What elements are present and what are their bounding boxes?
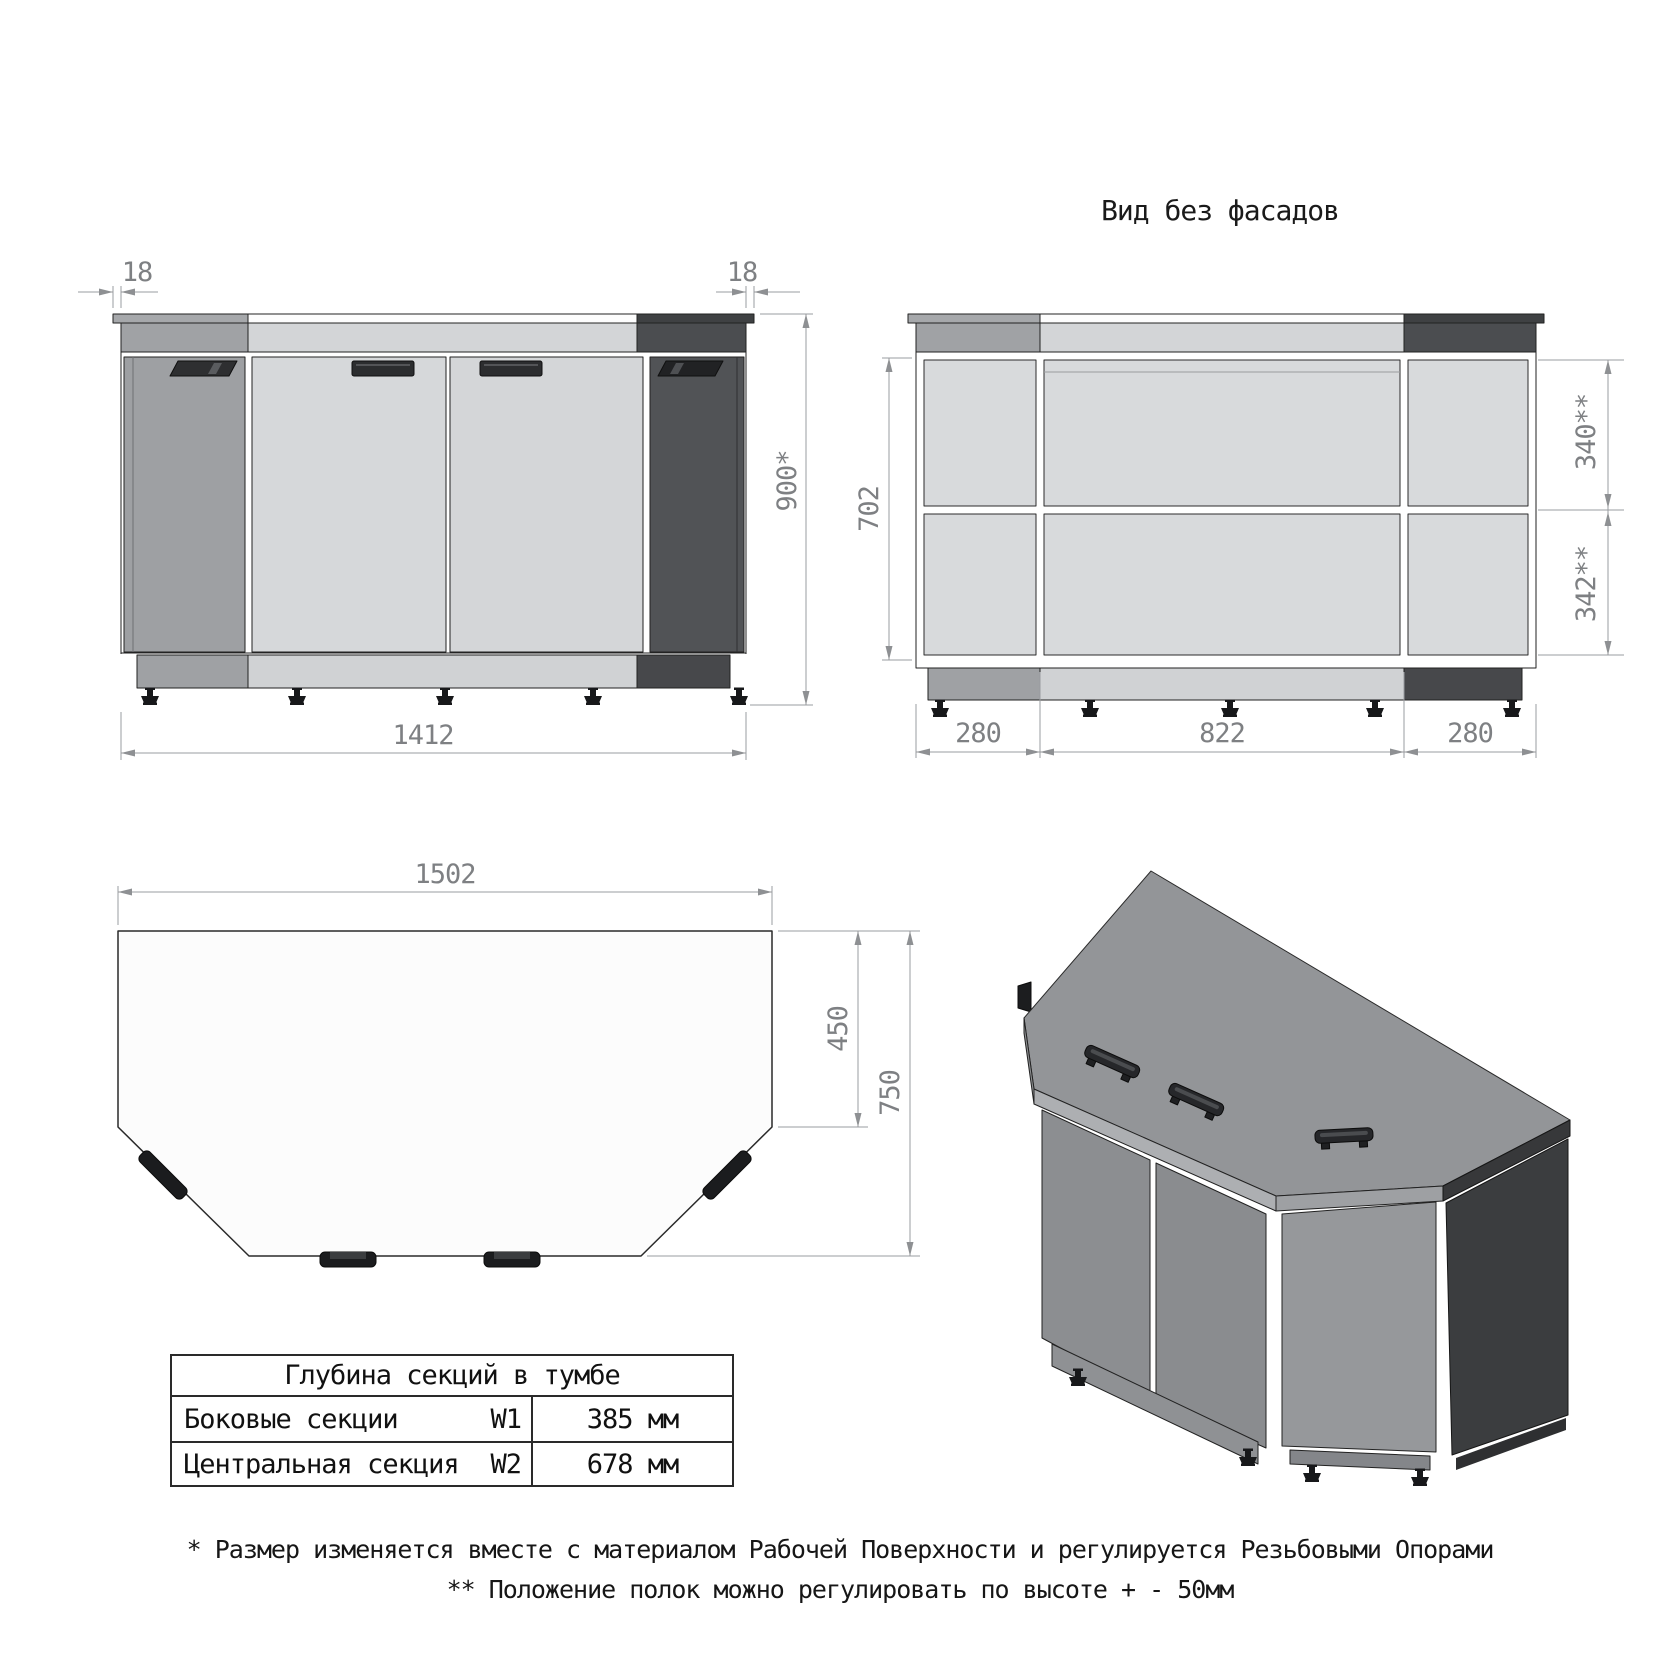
dim-plan-width xyxy=(118,886,772,925)
table-cell-value: 678 мм xyxy=(533,1443,732,1485)
arrow xyxy=(886,358,893,372)
door-center-1 xyxy=(252,357,446,652)
top-band-left xyxy=(916,323,1040,352)
dim-inner-height xyxy=(882,358,912,660)
arrow xyxy=(1605,360,1612,374)
door-right-side xyxy=(650,357,744,652)
handle-center-1-icon xyxy=(352,361,414,376)
plinth-left xyxy=(928,668,1040,700)
dim-text-plan-width: 1502 xyxy=(414,859,475,890)
dim-text-overhang-left: 18 xyxy=(122,257,153,288)
front-view: 18 18 900* 1412 xyxy=(78,257,813,760)
top-band-center xyxy=(1040,323,1404,352)
dim-text-left-section: 280 xyxy=(955,718,1001,749)
feet-front-view xyxy=(141,688,748,706)
arrow xyxy=(1040,749,1054,756)
arrow xyxy=(1605,494,1612,508)
table-row: Центральная секция W2 678 мм xyxy=(172,1443,732,1485)
section-left-top xyxy=(924,360,1036,506)
arrow xyxy=(1605,512,1612,526)
dim-text-lower-shelf: 342** xyxy=(1571,546,1602,622)
no-facade-view-title: Вид без фасадов xyxy=(1040,194,1400,227)
arrow xyxy=(855,1113,862,1127)
no-facade-view: 702 340** 342** 280 822 280 xyxy=(854,314,1624,758)
arrow xyxy=(1404,749,1418,756)
worktop-edge-center xyxy=(1040,314,1404,323)
row-label: Центральная секция xyxy=(184,1449,459,1480)
section-right-top xyxy=(1408,360,1528,506)
handle-right-icon xyxy=(658,361,723,376)
row-label: Боковые секции xyxy=(184,1404,398,1435)
plinth-center xyxy=(248,655,637,688)
isometric-view xyxy=(1018,871,1570,1486)
door-center-2 xyxy=(450,357,643,652)
plinth-center xyxy=(1040,668,1404,700)
plan-handle-gloss xyxy=(330,1252,366,1259)
arrow xyxy=(1390,749,1404,756)
handle-center-2-icon xyxy=(480,361,542,376)
worktop-outline xyxy=(118,931,772,1256)
dim-text-inner-height: 702 xyxy=(854,486,885,532)
top-band-center xyxy=(248,323,637,352)
arrow xyxy=(758,889,772,896)
footnote-1: * Размер изменяется вместе с материалом … xyxy=(0,1530,1680,1570)
arrow xyxy=(121,750,135,757)
arrow xyxy=(732,750,746,757)
door-left-side xyxy=(124,357,245,652)
table-row: Боковые секции W1 385 мм xyxy=(172,1397,732,1443)
section-depth-table: Глубина секций в тумбе Боковые секции W1… xyxy=(170,1354,734,1487)
row-code: W2 xyxy=(490,1449,521,1480)
arrow xyxy=(907,931,914,945)
table-cell-label: Боковые секции W1 xyxy=(172,1397,533,1441)
top-band-right xyxy=(637,323,746,352)
top-band-right xyxy=(1404,323,1536,352)
arrow xyxy=(1605,641,1612,655)
arrow xyxy=(803,691,810,705)
arrow xyxy=(907,1242,914,1256)
section-left-bottom xyxy=(924,514,1036,655)
arrow xyxy=(121,289,135,296)
plinth-right xyxy=(1404,668,1522,700)
dim-text-right-section: 280 xyxy=(1447,718,1493,749)
section-right-bottom xyxy=(1408,514,1528,655)
feet-no-facade xyxy=(931,700,1521,718)
table-title: Глубина секций в тумбе xyxy=(172,1356,732,1397)
drawing-sheet: 18 18 900* 1412 xyxy=(0,0,1680,1680)
table-cell-value: 385 мм xyxy=(533,1397,732,1441)
arrow xyxy=(754,289,768,296)
dim-text-width: 1412 xyxy=(392,720,453,751)
arrow xyxy=(803,314,810,328)
arrow xyxy=(1522,749,1536,756)
top-band-left xyxy=(121,323,248,352)
dim-text-height: 900* xyxy=(772,450,803,511)
iso-handle-left-edge-icon xyxy=(1018,982,1031,1012)
footnote-2: ** Положение полок можно регулировать по… xyxy=(0,1570,1680,1610)
dim-text-overhang-right: 18 xyxy=(727,257,758,288)
dim-overhang-left xyxy=(78,286,158,308)
arrow xyxy=(886,646,893,660)
plan-view: 1502 450 750 xyxy=(118,859,920,1267)
dim-overhang-right xyxy=(716,286,800,308)
dim-text-total-depth: 750 xyxy=(875,1070,906,1116)
plan-handle-gloss xyxy=(494,1252,530,1259)
arrow xyxy=(99,289,113,296)
dim-text-upper-shelf: 340** xyxy=(1571,394,1602,470)
arrow xyxy=(855,931,862,945)
worktop-edge-left xyxy=(908,314,1040,323)
worktop-edge-right xyxy=(637,314,754,323)
plinth-left xyxy=(137,655,248,688)
section-center-top xyxy=(1044,360,1400,506)
table-cell-label: Центральная секция W2 xyxy=(172,1443,533,1485)
worktop-edge-left xyxy=(113,314,248,323)
arrow xyxy=(1026,749,1040,756)
dim-text-side-depth: 450 xyxy=(823,1006,854,1052)
iso-door-angled xyxy=(1282,1202,1436,1452)
handle-left-icon xyxy=(170,361,237,376)
footnotes: * Размер изменяется вместе с материалом … xyxy=(0,1530,1680,1610)
arrow xyxy=(916,749,930,756)
worktop-edge-right xyxy=(1404,314,1544,323)
worktop-edge-center xyxy=(248,314,637,323)
arrow xyxy=(732,289,746,296)
plinth-right xyxy=(637,655,730,688)
arrow xyxy=(118,889,132,896)
row-code: W1 xyxy=(490,1404,521,1435)
dim-text-center-section: 822 xyxy=(1199,718,1245,749)
section-center-bottom xyxy=(1044,514,1400,655)
